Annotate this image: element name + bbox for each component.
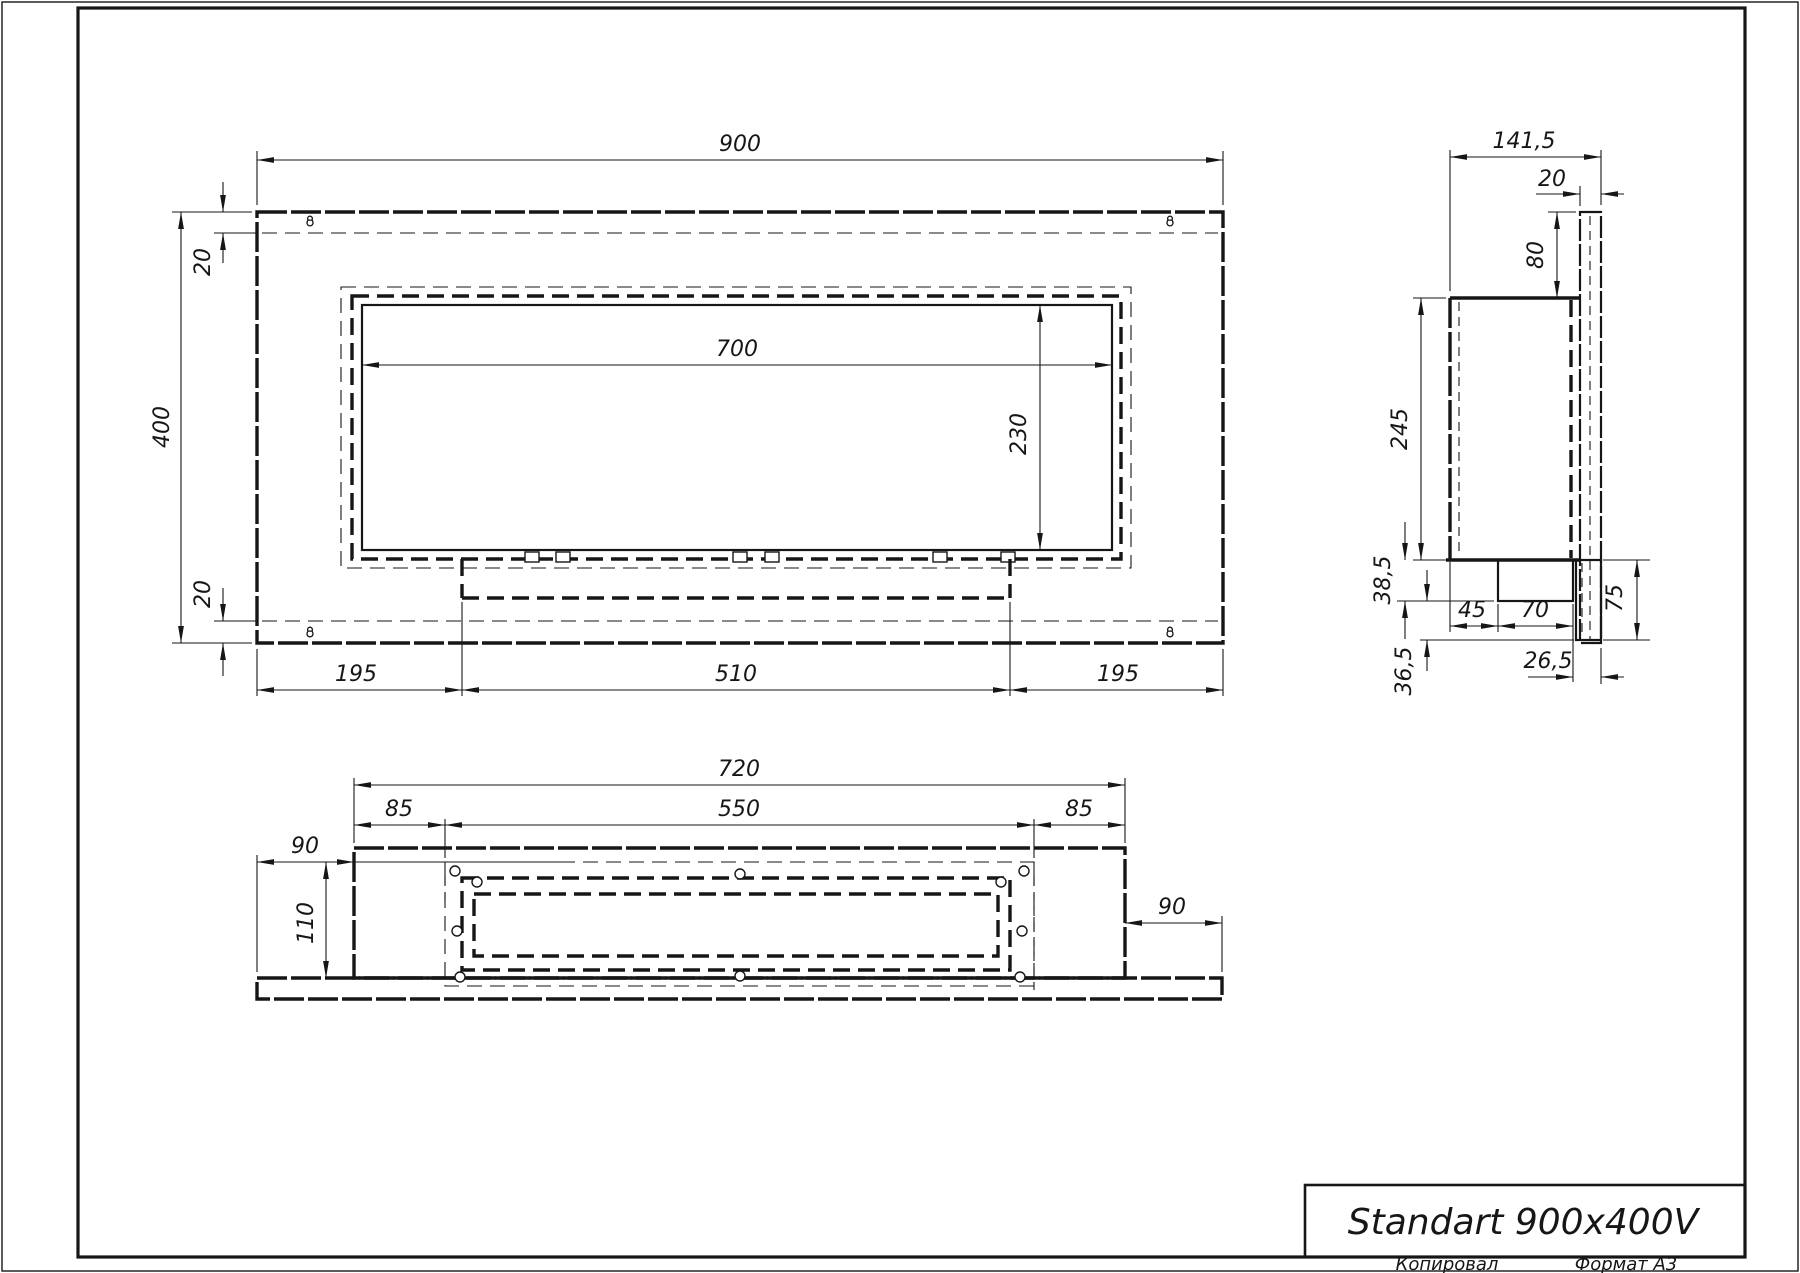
sheet-frame: [2, 2, 1798, 1271]
burner-hidden-outline: [462, 559, 1010, 598]
side-dim-top-gap: 80: [1524, 212, 1576, 298]
dim-text-bottom-left-flange: 90: [291, 834, 319, 859]
dim-text-front-right-margin: 195: [1097, 662, 1139, 687]
side-dim-below-body: 36,5: [1392, 570, 1434, 695]
dim-text-side-depth: 141,5: [1493, 129, 1556, 154]
dim-text-side-tray-width: 70: [1521, 598, 1549, 623]
dim-text-front-overall-width: 900: [719, 132, 761, 157]
front-dim-top-offset: 20: [191, 182, 258, 276]
dim-text-bottom-left-inset: 85: [385, 797, 413, 822]
front-dim-chain-bottom: 195 510 195: [257, 602, 1223, 696]
front-dim-bottom-offset: 20: [191, 580, 258, 676]
dim-text-side-body-height: 245: [1388, 408, 1413, 450]
title-block: Standart 900x400V: [1305, 1185, 1745, 1257]
keyhole-slot-icon: [1167, 627, 1173, 637]
side-view: 141,5 20 80 245 38,5: [1371, 129, 1650, 695]
bottom-view: 720 85 550 85 90 110: [257, 757, 1222, 999]
dim-text-front-burner-width: 510: [715, 662, 757, 687]
opening-frame-outline: [352, 296, 1121, 559]
front-dim-overall-width: 900: [257, 132, 1223, 205]
dim-text-front-overall-height: 400: [150, 406, 175, 448]
bottom-dim-right-flange: 90: [1125, 895, 1222, 972]
dim-text-bottom-right-flange: 90: [1158, 895, 1186, 920]
dim-text-side-front-to-tray: 45: [1458, 598, 1486, 623]
screw-holes: [450, 866, 1029, 982]
dim-text-side-tray-depth: 38,5: [1371, 556, 1396, 605]
format-label: Формат А3: [1575, 1254, 1678, 1273]
dim-text-bottom-body-depth: 110: [294, 902, 319, 944]
dim-text-side-tray-to-plate: 26,5: [1524, 649, 1573, 674]
drawing-sheet: 900 400 20 20 700: [0, 0, 1800, 1273]
drawing-canvas: 900 400 20 20 700: [0, 0, 1800, 1273]
keyhole-slot-icon: [307, 216, 313, 226]
bottom-hidden-outline: [445, 862, 1034, 986]
side-dim-plate-thickness: 20: [1536, 167, 1624, 206]
dim-text-bottom-body-width: 720: [718, 757, 760, 782]
burner-tray-profile: [1498, 560, 1573, 601]
keyhole-slot-icon: [307, 627, 313, 637]
dim-text-front-top-offset: 20: [191, 248, 216, 276]
front-dim-opening-width: 700: [362, 337, 1112, 365]
front-view: 900 400 20 20 700: [150, 132, 1223, 696]
side-dim-body-height: 245: [1388, 298, 1446, 560]
dim-text-front-left-margin: 195: [335, 662, 377, 687]
copied-label: Копировал: [1396, 1254, 1499, 1273]
front-dim-opening-height: 230: [1007, 305, 1040, 550]
dim-text-front-opening-height: 230: [1007, 413, 1032, 455]
title-block-title: Standart 900x400V: [1348, 1202, 1701, 1243]
side-dim-tray-to-plate: 26,5: [1524, 648, 1624, 684]
dim-text-side-below-body: 36,5: [1392, 647, 1417, 696]
dim-text-front-opening-width: 700: [716, 337, 758, 362]
dim-text-side-plate-thickness: 20: [1538, 167, 1566, 192]
dim-text-side-bracket-height: 75: [1603, 584, 1628, 612]
keyhole-slot-icon: [1167, 216, 1173, 226]
dim-text-bottom-right-inset: 85: [1065, 797, 1093, 822]
dim-text-bottom-screw-span: 550: [718, 797, 760, 822]
bottom-burner-opening: [474, 894, 998, 956]
dim-text-side-top-gap: 80: [1524, 241, 1549, 269]
dim-text-front-bottom-offset: 20: [191, 580, 216, 608]
